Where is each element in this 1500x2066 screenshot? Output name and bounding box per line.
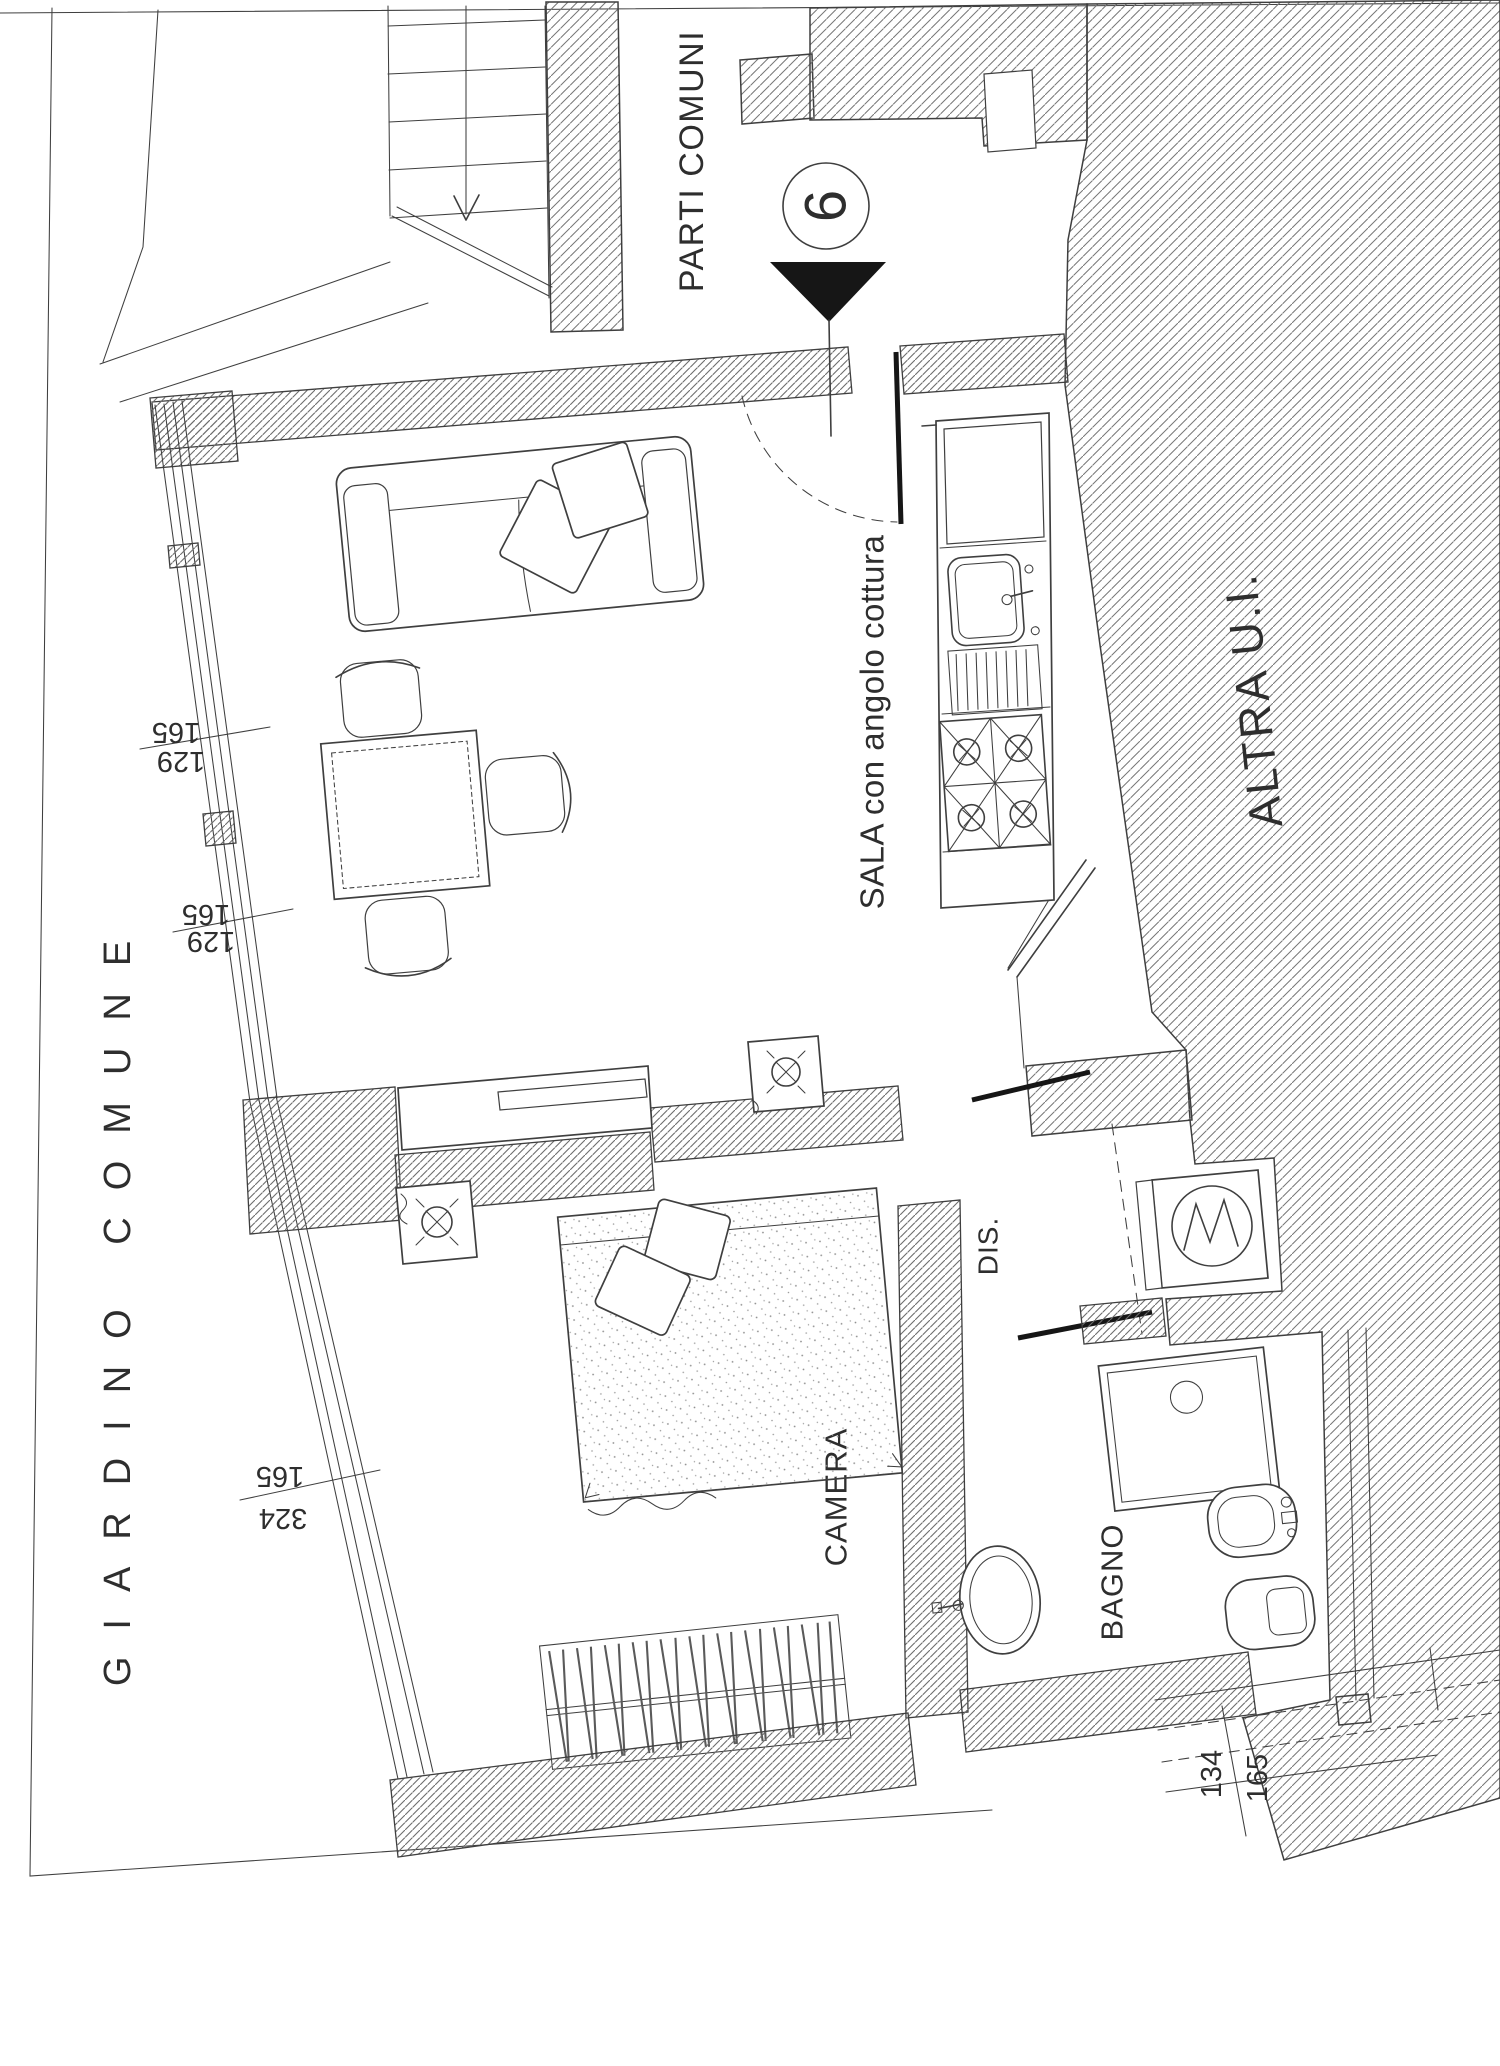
dis-label: DIS. [973, 1217, 1004, 1275]
south-walls [390, 1652, 1256, 1857]
dim-value: 165 [1242, 1754, 1274, 1802]
sala-label: SALA con angolo cottura [854, 534, 891, 909]
lamp-icon [767, 1051, 805, 1093]
bidet [1205, 1481, 1301, 1560]
table-top [321, 730, 490, 899]
chair [484, 751, 574, 838]
door-jamb [900, 334, 1068, 394]
window-pier [203, 811, 236, 846]
unit-number: 6 [794, 190, 859, 222]
entrance-door-leaf [896, 352, 901, 524]
entrance-wall [152, 347, 852, 450]
dim-value: 165 [256, 1460, 304, 1492]
south-jamb-block [1336, 1694, 1371, 1725]
window-pier-top [168, 543, 200, 568]
sofa [335, 435, 705, 633]
dim-value: 134 [1196, 1750, 1228, 1798]
parti-comuni-label: PARTI COMUNI [673, 30, 711, 292]
dimension-sala-window-1: 165 129 [140, 716, 270, 777]
stair-treads [388, 20, 547, 218]
staircase: PARTI COMUNI [100, 2, 711, 402]
hall-walls [100, 10, 428, 402]
kitchen-block [922, 413, 1054, 908]
hall-north-wall [1026, 1050, 1192, 1136]
dim-value: 129 [157, 745, 205, 777]
bathroom-door-jamb [1080, 1298, 1166, 1344]
stair-side-wall [546, 2, 623, 332]
washing-machine-icon [1136, 1170, 1268, 1290]
dim-value: 324 [259, 1502, 307, 1534]
corner-pier [150, 391, 238, 468]
double-bed [557, 1178, 904, 1516]
scanned-floorplan-page: ALTRA U.I. PARTI COMUNI 6 165 129 [0, 0, 1500, 2066]
top-hatch-block [810, 4, 1087, 146]
chair [360, 895, 452, 980]
toilet [1223, 1573, 1318, 1652]
floorplan-drawing: ALTRA U.I. PARTI COMUNI 6 165 129 [0, 0, 1500, 2066]
entrance-arrow-stem [829, 320, 831, 436]
bathroom-west-wall [898, 1200, 968, 1718]
nightstand-left [396, 1181, 477, 1264]
dim-value: 129 [187, 925, 235, 957]
giardino-comune-label: GIARDINO COMUNE [97, 914, 139, 1686]
bagno-label: BAGNO [1095, 1524, 1130, 1641]
entrance-arrow-icon [770, 262, 886, 322]
wall-notch [984, 70, 1036, 152]
stair-rail [392, 207, 552, 296]
door-swing-arc [742, 396, 897, 522]
garden-area: GIARDINO COMUNE [97, 914, 139, 1686]
dimension-camera-window: 165 324 [240, 1460, 380, 1534]
bathroom-south-wall [960, 1652, 1256, 1752]
chair [335, 658, 425, 739]
dining-table [314, 646, 585, 982]
nightstand-right [748, 1036, 824, 1114]
top-hatch-block-small [740, 54, 814, 124]
dim-value: 165 [152, 716, 200, 748]
